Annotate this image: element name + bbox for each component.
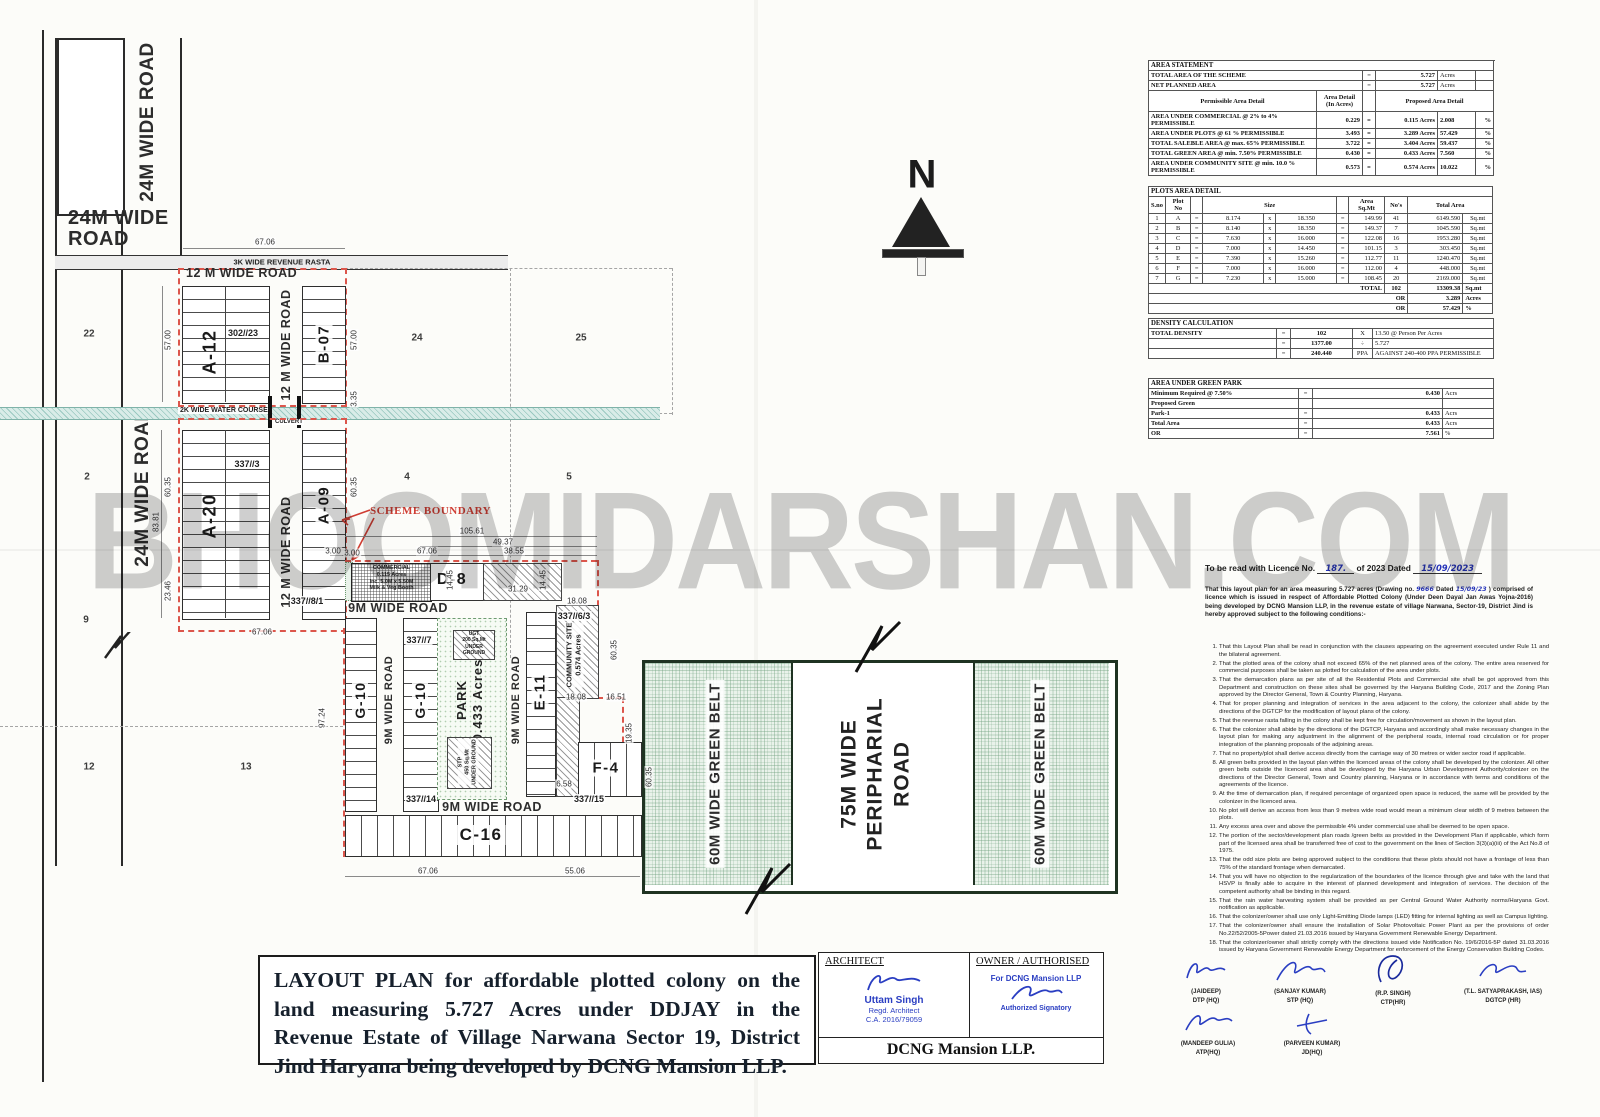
table-cell: 149.99 (1349, 214, 1385, 224)
table-row: =1377.00÷5.727 (1149, 339, 1494, 349)
table-cell: 7 (1385, 224, 1408, 234)
dim-annotation: 67.06 (254, 238, 276, 247)
table-cell: 149.37 (1349, 224, 1385, 234)
signatory-title: STP (HQ) (1252, 997, 1348, 1006)
signature-block: (JAIDEEP) DTP (HQ) (1158, 958, 1254, 1006)
dim-annotation: 3.00 (324, 547, 342, 556)
dim-annotation: 49.37 (492, 538, 514, 547)
table-cell: = (1191, 214, 1203, 224)
dim-annotation: 60.35 (164, 476, 173, 498)
table-cell: 7.560 (1438, 149, 1476, 159)
table-cell: AGAINST 240-400 PPA PERMISSIBLE (1373, 349, 1494, 359)
dim-annotation: 19.35 (625, 722, 634, 744)
table-cell: = (1337, 254, 1349, 264)
owner-stamp-line1: For DCNG Mansion LLP (970, 974, 1102, 983)
table-cell: Acrs (1443, 409, 1494, 419)
table-cell: x (1264, 264, 1276, 274)
table-cell: 41 (1385, 214, 1408, 224)
table-cell: = (1277, 339, 1291, 349)
condition-item: That the plotted area of the colony shal… (1219, 661, 1549, 676)
table-cell: TOTAL DENSITY (1149, 329, 1277, 339)
table-cell: % (1476, 139, 1494, 149)
table-cell: = (1299, 429, 1313, 439)
table-cell (1443, 399, 1494, 409)
table-cell: A (1165, 214, 1190, 224)
table-cell: 1953.280 (1408, 234, 1463, 244)
licence-number: 187. (1317, 563, 1354, 574)
condition-item: That the rain water harvesting system sh… (1219, 898, 1549, 913)
table-cell: PPA (1353, 349, 1373, 359)
table-row: Proposed Green (1149, 399, 1494, 409)
table-cell: F (1165, 264, 1190, 274)
table-row: TOTAL DENSITY=102X13.50 @ Person Per Acr… (1149, 329, 1494, 339)
fieldno-annotation: 24 (411, 333, 422, 344)
table-cell: 0.430 (1313, 389, 1443, 399)
table-cell: AREA UNDER COMMERCIAL @ 2% to 4% PERMISS… (1149, 112, 1317, 129)
table-cell: = (1277, 329, 1291, 339)
table-cell: Sq.mt (1463, 254, 1493, 264)
table-row: OR=7.561% (1149, 429, 1494, 439)
licence-prefix: To be read with Licence No. (1205, 563, 1315, 573)
table-cell: 11 (1385, 254, 1408, 264)
table-cell: 7.630 (1202, 234, 1263, 244)
table-cell: G (1165, 274, 1190, 284)
table-cell: % (1476, 112, 1494, 129)
table-cell: = (1191, 224, 1203, 234)
dim-annotation: 18.08 (565, 693, 587, 702)
fieldno-annotation: 12 (83, 762, 94, 773)
table-cell: 0.430 (1317, 149, 1363, 159)
table-cell: % (1476, 159, 1494, 176)
north-triangle-icon (892, 197, 950, 247)
fieldno-annotation: 22 (83, 329, 94, 340)
table-cell: OR (1149, 429, 1299, 439)
table-cell: = (1191, 234, 1203, 244)
table-cell: TOTAL GREEN AREA @ min. 7.50% PERMISSIBL… (1149, 149, 1317, 159)
table-cell: 108.45 (1349, 274, 1385, 284)
table-cell: Acrs (1443, 419, 1494, 429)
green-park-table: AREA UNDER GREEN PARK Minimum Required @… (1148, 378, 1494, 439)
table-cell: 101.15 (1349, 244, 1385, 254)
architect-signature-icon (862, 972, 926, 994)
table-cell: 2.008 (1438, 112, 1476, 129)
khasra-annotation: 337//6/3 (557, 611, 592, 621)
title-block: LAYOUT PLAN for affordable plotted colon… (258, 955, 816, 1065)
company-name: DCNG Mansion LLP. (819, 1037, 1103, 1062)
signatory-name: (R.P. SINGH) (1348, 990, 1438, 999)
table-cell: 303.450 (1408, 244, 1463, 254)
table-cell: 13.50 @ Person Per Acres (1373, 329, 1494, 339)
table-cell: 3.404 Acres (1376, 139, 1438, 149)
table-cell: 10.022 (1438, 159, 1476, 176)
table-cell: Sq.mt (1463, 264, 1493, 274)
dim-annotation: 31.29 (507, 585, 529, 594)
owner-signature-icon (1008, 983, 1064, 1003)
table-cell: = (1191, 244, 1203, 254)
dim-annotation: 57.00 (350, 329, 359, 351)
architect-name: Uttam Singh (819, 995, 969, 1006)
table-cell: 7.000 (1202, 264, 1263, 274)
table-cell: 3 (1149, 234, 1166, 244)
table-title: DENSITY CALCULATION (1149, 319, 1494, 329)
table-cell: = (1337, 244, 1349, 254)
table-cell: Sq.mt (1463, 214, 1493, 224)
signature-icon (1474, 958, 1532, 984)
table-cell: TOTAL SALEBLE AREA @ max. 65% PERMISSIBL… (1149, 139, 1317, 149)
dim-annotation: 67.06 (251, 628, 273, 637)
condition-item: That the demarcation plans as per site o… (1219, 677, 1549, 700)
table-cell: 1045.590 (1408, 224, 1463, 234)
condition-item: The portion of the sector/development pl… (1219, 833, 1549, 856)
signatory-name: (SANJAY KUMAR) (1252, 988, 1348, 997)
signature-icon (1273, 958, 1327, 984)
density-calculation-table: DENSITY CALCULATION TOTAL DENSITY=102X13… (1148, 318, 1494, 359)
table-row: 1A=8.174x18.350=149.99416149.590Sq.mt (1149, 214, 1493, 224)
condition-item: That the colonizer/owner shall ensure th… (1219, 923, 1549, 938)
table-cell: = (1337, 224, 1349, 234)
khasra-annotation: 302//23 (227, 328, 259, 338)
table-cell: = (1191, 274, 1203, 284)
fold-crease (0, 549, 1600, 551)
table-cell: x (1264, 254, 1276, 264)
table-cell: 18.350 (1275, 214, 1336, 224)
dim-annotation: 60.35 (350, 476, 359, 498)
table-cell: = (1337, 234, 1349, 244)
condition-item: Any excess area over and above the permi… (1219, 824, 1549, 832)
table-row: =240.440PPAAGAINST 240-400 PPA PERMISSIB… (1149, 349, 1494, 359)
signatory-title: JD(HQ) (1262, 1049, 1362, 1058)
licence-conditions-list: That this Layout Plan shall be read in c… (1205, 644, 1549, 956)
khasra-annotation: 337//14 (405, 794, 437, 804)
table-cell: x (1264, 214, 1276, 224)
table-title: PLOTS AREA DETAIL (1149, 187, 1493, 197)
table-cell: = (1191, 264, 1203, 274)
signature-block: (MANDEEP GULIA) ATP(HQ) (1158, 1010, 1258, 1058)
table-row: Minimum Required @ 7.50%=0.430Acrs (1149, 389, 1494, 399)
table-cell: = (1337, 264, 1349, 274)
table-cell: B (1165, 224, 1190, 234)
fieldno-annotation: 5 (566, 472, 572, 483)
signatory-title: ATP(HQ) (1158, 1049, 1258, 1058)
condition-item: That the colonizer shall abide by the di… (1219, 727, 1549, 750)
table-cell: = (1363, 129, 1376, 139)
table-cell: 2169.000 (1408, 274, 1463, 284)
table-row: 6F=7.000x16.000=112.004448.000Sq.mt (1149, 264, 1493, 274)
condition-item: That the revenue rasta falling in the co… (1219, 718, 1549, 726)
signatory-name: (T.L. SATYAPRAKASH, IAS) (1438, 988, 1568, 997)
table-cell: AREA UNDER COMMUNITY SITE @ min. 10.0 % … (1149, 159, 1317, 176)
table-cell: 5.727 (1373, 339, 1494, 349)
licence-mid: of 2023 Dated (1356, 563, 1410, 573)
dim-annotation: 67.06 (416, 547, 438, 556)
table-cell: E (1165, 254, 1190, 264)
table-cell: % (1476, 149, 1494, 159)
dim-annotation: 83.81 (152, 511, 161, 533)
fold-crease (754, 0, 758, 1117)
fieldno-annotation: 9 (83, 615, 89, 626)
fieldno-annotation: 13 (240, 762, 251, 773)
drawing-number: 9666 (1416, 586, 1434, 593)
table-cell: Sq.mt (1463, 234, 1493, 244)
table-cell: = (1337, 214, 1349, 224)
table-cell: 57.429 (1438, 129, 1476, 139)
dim-annotation: 67.06 (417, 867, 439, 876)
table-cell: 0.229 (1317, 112, 1363, 129)
table-cell: Sq.mt (1463, 244, 1493, 254)
fieldno-annotation: 25 (575, 333, 586, 344)
signature-icon (1289, 1010, 1335, 1036)
table-cell: Minimum Required @ 7.50% (1149, 389, 1299, 399)
condition-item: At the time of demarcation plan, if requ… (1219, 791, 1549, 806)
khasra-annotation: 337//7 (405, 635, 432, 645)
table-cell: 112.00 (1349, 264, 1385, 274)
dim-annotation: 6.58 (555, 780, 573, 789)
signature-block: (PARVEEN KUMAR) JD(HQ) (1262, 1010, 1362, 1058)
dim-annotation: 14.45 (539, 569, 548, 591)
table-cell: 1 (1149, 214, 1166, 224)
signatory-title: CTP(HR) (1348, 999, 1438, 1008)
table-cell: = (1337, 274, 1349, 284)
table-cell: 7.561 (1313, 429, 1443, 439)
owner-header: OWNER / AUTHORISED (970, 953, 1102, 970)
khasra-annotation: 337//8/1 (290, 596, 325, 606)
table-row: 2B=8.140x18.350=149.3771045.590Sq.mt (1149, 224, 1493, 234)
table-cell: 6149.590 (1408, 214, 1463, 224)
khasra-annotation: 337//3 (233, 459, 260, 469)
dim-annotation: 3.35 (350, 390, 359, 408)
signature-icon (1182, 1010, 1234, 1036)
table-cell: = (1299, 419, 1313, 429)
table-cell: 59.437 (1438, 139, 1476, 149)
table-row: AREA UNDER COMMERCIAL @ 2% to 4% PERMISS… (1149, 112, 1494, 129)
condition-item: That the colonizer/owner shall use only … (1219, 914, 1549, 922)
signature-block: (R.P. SINGH) CTP(HR) (1348, 952, 1438, 1008)
layout-plan-sheet: 24M WIDE ROAD 24M WIDE ROAD 24M WIDE ROA… (0, 0, 1600, 1117)
table-cell: 122.08 (1349, 234, 1385, 244)
table-cell: x (1264, 244, 1276, 254)
table-cell: 7.000 (1202, 244, 1263, 254)
table-cell: 0.115 Acres (1376, 112, 1438, 129)
table-cell (1299, 399, 1313, 409)
table-row: AREA UNDER PLOTS @ 61 % PERMISSIBLE3.493… (1149, 129, 1494, 139)
signatory-name: (MANDEEP GULIA) (1158, 1040, 1258, 1049)
table-row: Park-1=0.433Acrs (1149, 409, 1494, 419)
owner-cell: OWNER / AUTHORISED For DCNG Mansion LLP … (970, 953, 1102, 1037)
table-cell: x (1264, 274, 1276, 284)
dim-annotation: 18.08 (566, 597, 588, 606)
table-cell: X (1353, 329, 1373, 339)
signature-icon (1371, 952, 1415, 986)
table-cell: 0.433 Acres (1376, 149, 1438, 159)
table-row: 3C=7.630x16.000=122.08161953.280Sq.mt (1149, 234, 1493, 244)
table-cell (1313, 399, 1443, 409)
signature-icon (1181, 958, 1231, 984)
table-cell: 16 (1385, 234, 1408, 244)
table-cell: 5 (1149, 254, 1166, 264)
table-cell: D (1165, 244, 1190, 254)
table-cell: Park-1 (1149, 409, 1299, 419)
table-cell: 2 (1149, 224, 1166, 234)
dim-annotation: 23.46 (164, 580, 173, 602)
table-cell: Sq.mt (1463, 274, 1493, 284)
signatory-name: (PARVEEN KUMAR) (1262, 1040, 1362, 1049)
table-cell: 3.289 Acres (1376, 129, 1438, 139)
table-row: Total Area=0.433Acrs (1149, 419, 1494, 429)
condition-item: That this Layout Plan shall be read in c… (1219, 644, 1549, 659)
table-cell: 15.000 (1275, 274, 1336, 284)
table-row: TOTAL GREEN AREA @ min. 7.50% PERMISSIBL… (1149, 149, 1494, 159)
drawing-date: 15/09/23 (1456, 586, 1487, 593)
table-cell: 7.390 (1202, 254, 1263, 264)
table-cell: ÷ (1353, 339, 1373, 349)
architect-owner-block: ARCHITECT Uttam Singh Regd. Architect C.… (818, 952, 1104, 1064)
table-cell: 20 (1385, 274, 1408, 284)
condition-item: That the odd size plots are being approv… (1219, 857, 1549, 872)
intro-text: That this layout plan for an area measur… (1205, 586, 1414, 593)
dim-annotation: 55.06 (564, 867, 586, 876)
north-stem (917, 257, 926, 276)
licence-intro: That this layout plan for an area measur… (1205, 586, 1533, 619)
table-cell: 1240.470 (1408, 254, 1463, 264)
condition-item: All green belts provided in the layout p… (1219, 760, 1549, 790)
owner-stamp-line2: Authorized Signatory (970, 1005, 1102, 1012)
dim-annotation: 57.00 (164, 329, 173, 351)
table-cell: 14.450 (1275, 244, 1336, 254)
table-cell: Total Area (1149, 419, 1299, 429)
table-cell: 6 (1149, 264, 1166, 274)
table-cell: = (1363, 149, 1376, 159)
table-cell: C (1165, 234, 1190, 244)
architect-regd: Regd. Architect (819, 1006, 969, 1015)
signature-block: (SANJAY KUMAR) STP (HQ) (1252, 958, 1348, 1006)
table-cell: 0.574 Acres (1376, 159, 1438, 176)
table-cell: 4 (1385, 264, 1408, 274)
table-cell: 0.433 (1313, 409, 1443, 419)
table-cell: = (1277, 349, 1291, 359)
intro-text: Dated (1436, 586, 1454, 593)
table-cell: 16.000 (1275, 264, 1336, 274)
table-title: AREA STATEMENT (1149, 61, 1494, 71)
licence-line: To be read with Licence No. 187. of 2023… (1205, 563, 1535, 573)
table-cell: 15.260 (1275, 254, 1336, 264)
khasra-annotation: 337//15 (573, 794, 605, 804)
dim-annotation: 105.61 (459, 527, 485, 536)
table-cell: 3 (1385, 244, 1408, 254)
condition-item: That for proper planning and integration… (1219, 701, 1549, 716)
architect-ca-number: C.A. 2016/79059 (819, 1015, 969, 1024)
table-cell: = (1363, 159, 1376, 176)
fieldno-annotation: 2 (84, 472, 90, 483)
signatory-name: (JAIDEEP) (1158, 988, 1254, 997)
dim-annotation: 14.45 (446, 569, 455, 591)
table-cell (1149, 339, 1277, 349)
table-cell: AREA UNDER PLOTS @ 61 % PERMISSIBLE (1149, 129, 1317, 139)
table-cell: 8.140 (1202, 224, 1263, 234)
table-cell: 102 (1291, 329, 1353, 339)
table-row: 4D=7.000x14.450=101.153303.450Sq.mt (1149, 244, 1493, 254)
condition-item: No plot will derive an access from less … (1219, 808, 1549, 823)
table-cell: 112.77 (1349, 254, 1385, 264)
table-row: TOTAL SALEBLE AREA @ max. 65% PERMISSIBL… (1149, 139, 1494, 149)
table-cell: 3.722 (1317, 139, 1363, 149)
table-cell: 448.000 (1408, 264, 1463, 274)
signatory-title: DTP (HQ) (1158, 997, 1254, 1006)
dim-annotation: 97.24 (318, 707, 327, 729)
condition-item: That no property/plot shall derive acces… (1219, 751, 1549, 759)
table-cell (1149, 349, 1277, 359)
north-label: N (908, 153, 937, 198)
table-cell: x (1264, 224, 1276, 234)
table-cell: 1377.00 (1291, 339, 1353, 349)
signatory-title: DGTCP (HR) (1438, 997, 1568, 1006)
table-cell: 7.230 (1202, 274, 1263, 284)
table-cell: x (1264, 234, 1276, 244)
table-cell: 4 (1149, 244, 1166, 254)
plots-area-detail-table: PLOTS AREA DETAIL S.noPlot No Size Area … (1148, 186, 1493, 314)
signature-block: (T.L. SATYAPRAKASH, IAS) DGTCP (HR) (1438, 958, 1568, 1006)
dim-annotation: 38.55 (503, 547, 525, 556)
table-cell: Acrs (1443, 389, 1494, 399)
table-row: AREA UNDER COMMUNITY SITE @ min. 10.0 % … (1149, 159, 1494, 176)
table-cell: 240.440 (1291, 349, 1353, 359)
table-cell: = (1299, 409, 1313, 419)
table-cell: 0.573 (1317, 159, 1363, 176)
table-title: AREA UNDER GREEN PARK (1149, 379, 1494, 389)
table-cell: % (1443, 429, 1494, 439)
table-cell: = (1191, 254, 1203, 264)
condition-item: That you will have no objection to the r… (1219, 874, 1549, 897)
architect-cell: ARCHITECT Uttam Singh Regd. Architect C.… (819, 953, 970, 1037)
area-statement-table: AREA STATEMENT TOTAL AREA OF THE SCHEME=… (1148, 60, 1494, 176)
table-cell: % (1476, 129, 1494, 139)
table-cell: 3.493 (1317, 129, 1363, 139)
table-cell: 7 (1149, 274, 1166, 284)
dim-annotation: 60.35 (610, 639, 619, 661)
table-row: 5E=7.390x15.260=112.77111240.470Sq.mt (1149, 254, 1493, 264)
table-cell: = (1363, 139, 1376, 149)
table-cell: 16.000 (1275, 234, 1336, 244)
table-cell: = (1299, 389, 1313, 399)
table-cell: = (1363, 112, 1376, 129)
dim-annotation: 16.51 (605, 693, 627, 702)
table-cell: 18.350 (1275, 224, 1336, 234)
licence-date: 15/09/2023 (1413, 563, 1482, 574)
table-cell: 0.433 (1313, 419, 1443, 429)
table-cell: 8.174 (1202, 214, 1263, 224)
table-cell: Sq.mt (1463, 224, 1493, 234)
dim-annotation: 60.35 (645, 766, 654, 788)
table-cell: Proposed Green (1149, 399, 1299, 409)
table-row: 7G=7.230x15.000=108.45202169.000Sq.mt (1149, 274, 1493, 284)
north-arrow: N (870, 155, 980, 280)
fieldno-annotation: 4 (404, 472, 410, 483)
architect-header: ARCHITECT (819, 953, 969, 970)
